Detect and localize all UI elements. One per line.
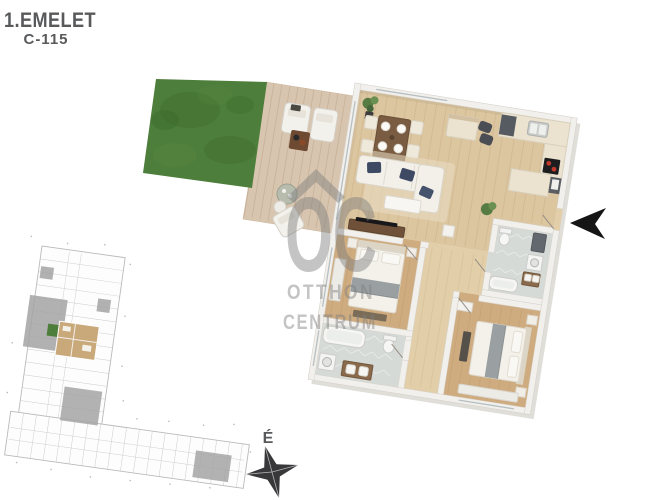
kitchen-tall-unit <box>499 114 517 136</box>
site-plan <box>0 233 277 499</box>
watermark-line1: OTTHON <box>287 281 375 304</box>
nightstand <box>526 315 537 325</box>
compass-north-label: É <box>263 428 274 447</box>
dining-chair <box>364 115 378 130</box>
compass: É <box>246 428 298 498</box>
garden-grass <box>143 79 267 188</box>
header: 1.EMELET C-115 <box>4 8 96 48</box>
kitchen-sink <box>527 121 549 138</box>
watermark-oc: OC <box>285 176 377 294</box>
floor-box <box>442 225 455 238</box>
floorplan-graphic: OC OTTHON CENTRUM É 1.EMELET C-115 <box>0 0 666 500</box>
dining-chair <box>410 120 424 135</box>
floor-title: 1.EMELET <box>4 8 96 32</box>
floorplan-page: OC OTTHON CENTRUM É 1.EMELET C-115 <box>0 0 666 500</box>
entrance-arrow-icon <box>570 208 606 239</box>
unit-label: C-115 <box>23 31 68 48</box>
bath-cabinet <box>531 233 547 253</box>
watermark-line2: CENTRUM <box>283 311 377 334</box>
site-plan-highlighted-unit <box>55 321 99 360</box>
cooktop <box>542 158 560 175</box>
washing-machine <box>526 254 543 271</box>
terrace-side-table <box>289 130 311 152</box>
vanity-sinks <box>522 272 541 287</box>
washing-machine <box>318 353 336 371</box>
